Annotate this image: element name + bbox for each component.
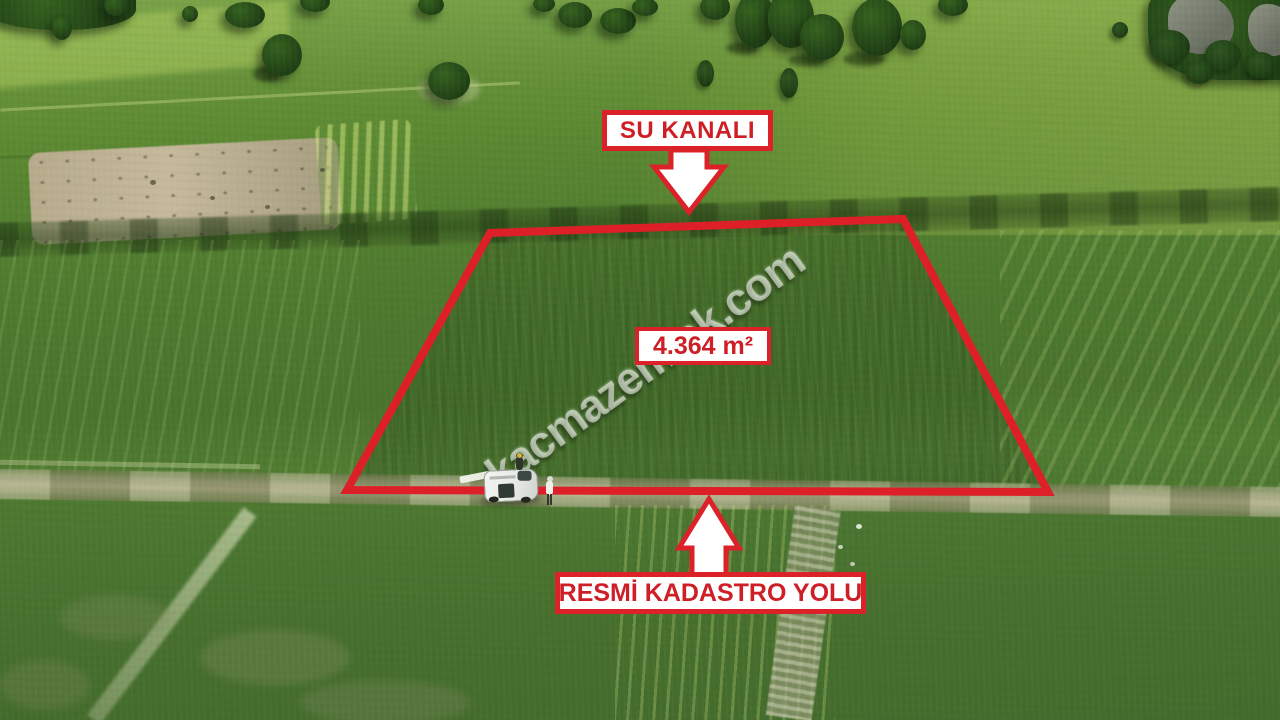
label-parcel-area-text: 4.364 m² [653,332,753,361]
figure-head [517,453,522,458]
figure-body [516,457,523,470]
label-su-kanali-text: SU KANALI [620,117,755,145]
down-arrow-icon [654,150,724,212]
label-su-kanali: SU KANALI [602,110,773,151]
up-arrow-icon [679,499,739,575]
person-leg [550,494,552,505]
label-resmi-kadastro-yolu: RESMİ KADASTRO YOLU [555,572,866,614]
person-body [546,481,553,495]
van-windshield [518,471,532,481]
parked-van [459,462,545,508]
van-open-door [498,483,515,498]
label-parcel-area: 4.364 m² [635,327,771,365]
standing-person [543,476,555,506]
aerial-photo: kacmazemlak.com SU KANALI 4.364 m² RESMİ… [0,0,1280,720]
label-resmi-kadastro-yolu-text: RESMİ KADASTRO YOLU [559,579,863,608]
person-leg [547,494,549,505]
second-figure [515,453,524,470]
